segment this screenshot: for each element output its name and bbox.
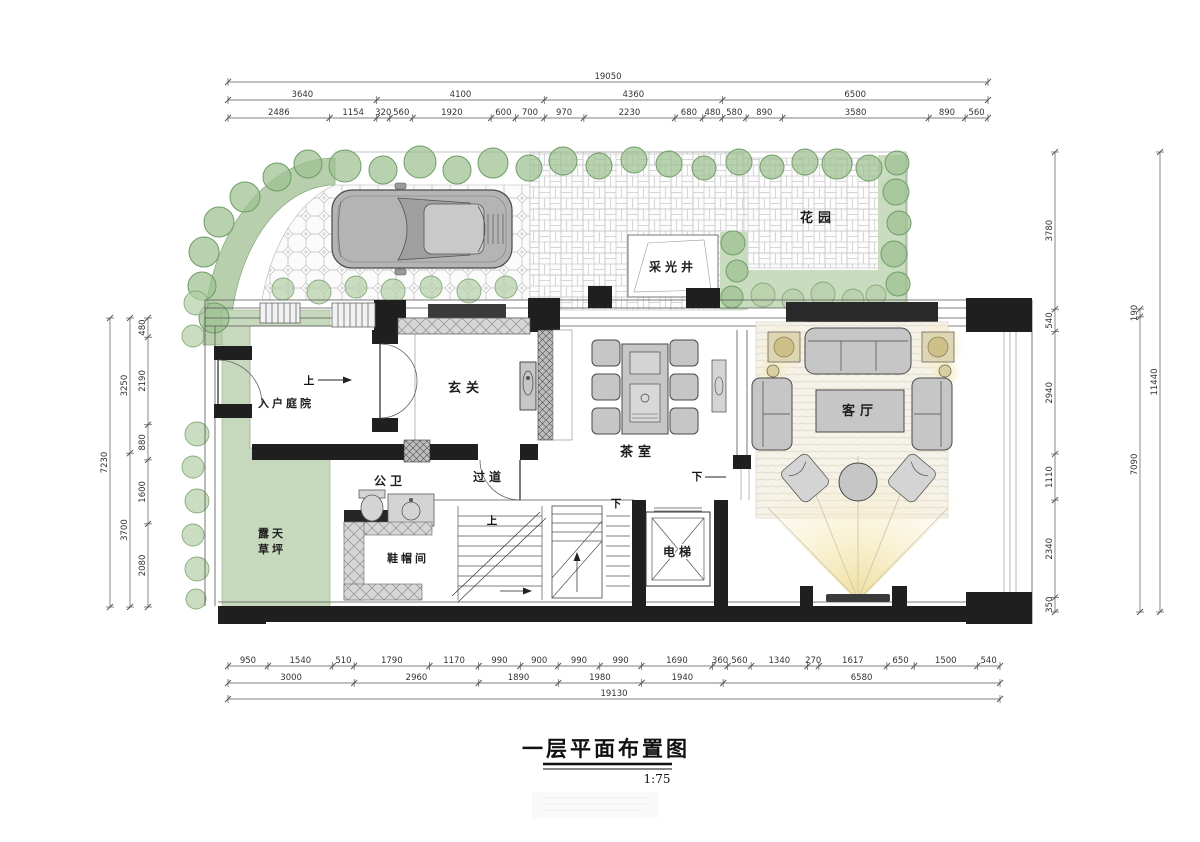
svg-text:360: 360 (712, 656, 728, 666)
floor-plan-drawing: 花园 采光井 入户庭院 玄关 茶室 客厅 公卫 过道 鞋帽间 电梯 露天 草坪 … (0, 0, 1200, 842)
label-entry-courtyard: 入户庭院 (258, 396, 314, 410)
down-annotation-step: 下 (692, 471, 726, 483)
svg-text:1890: 1890 (508, 673, 530, 683)
tea-room-furniture (592, 340, 726, 434)
label-cloakroom: 鞋帽间 (387, 551, 429, 565)
svg-text:480: 480 (138, 319, 148, 335)
dim-chain-left-mid: 32503700 (120, 315, 134, 610)
label-lawn-2: 草坪 (258, 542, 286, 556)
foyer-cabinets (398, 318, 536, 410)
svg-text:7090: 7090 (1130, 454, 1140, 476)
label-elevator: 电梯 (663, 544, 695, 559)
svg-text:480: 480 (704, 108, 720, 118)
svg-text:3000: 3000 (280, 673, 302, 683)
living-room-furniture (752, 321, 964, 602)
svg-text:890: 890 (756, 108, 772, 118)
dim-chain-right-inner: 3780540294011102340350 (1045, 149, 1059, 615)
dim-chain-left-outer: 7230 (100, 315, 114, 610)
svg-text:650: 650 (892, 656, 908, 666)
svg-text:1617: 1617 (842, 656, 864, 666)
svg-text:2230: 2230 (619, 108, 641, 118)
svg-text:2486: 2486 (268, 108, 290, 118)
svg-text:11440: 11440 (1150, 368, 1160, 395)
svg-text:1500: 1500 (935, 656, 957, 666)
drawing-title: 一层平面布置图 (522, 736, 690, 761)
svg-text:4360: 4360 (623, 90, 645, 100)
dim-chain-right-mid: 1907090 (1130, 305, 1144, 615)
label-lawn-1: 露天 (258, 527, 286, 540)
svg-text:19050: 19050 (594, 72, 621, 82)
svg-text:540: 540 (981, 656, 997, 666)
svg-text:950: 950 (240, 656, 256, 666)
svg-text:1940: 1940 (672, 673, 694, 683)
svg-text:560: 560 (393, 108, 409, 118)
svg-text:320: 320 (375, 108, 391, 118)
svg-text:1690: 1690 (666, 656, 688, 666)
svg-text:700: 700 (522, 108, 538, 118)
watermark (532, 792, 658, 818)
svg-text:2340: 2340 (1045, 538, 1055, 560)
svg-text:1154: 1154 (342, 108, 364, 118)
title-block: 一层平面布置图 1:75 (522, 736, 690, 786)
dim-chain-top-overall: 19050 (225, 72, 991, 86)
svg-text:2960: 2960 (406, 673, 428, 683)
svg-text:1600: 1600 (138, 481, 148, 503)
dim-chain-bottom-overall: 19130 (225, 689, 1003, 703)
up-annotation-stairs: 上 (487, 514, 498, 527)
svg-text:890: 890 (939, 108, 955, 118)
svg-text:3780: 3780 (1045, 220, 1055, 242)
svg-text:6500: 6500 (844, 90, 866, 100)
label-bathroom: 公卫 (374, 474, 406, 488)
dim-chain-right-outer: 11440 (1150, 149, 1164, 615)
svg-text:1980: 1980 (589, 673, 611, 683)
svg-text:900: 900 (531, 656, 547, 666)
svg-text:4100: 4100 (450, 90, 472, 100)
svg-text:990: 990 (491, 656, 507, 666)
floor-plan-canvas: 花园 采光井 入户庭院 玄关 茶室 客厅 公卫 过道 鞋帽间 电梯 露天 草坪 … (0, 0, 1200, 842)
svg-text:540: 540 (1045, 312, 1055, 328)
svg-text:1340: 1340 (769, 656, 791, 666)
svg-text:1920: 1920 (441, 108, 463, 118)
svg-text:3580: 3580 (845, 108, 867, 118)
svg-text:1790: 1790 (381, 656, 403, 666)
svg-text:2190: 2190 (138, 370, 148, 392)
label-light-well: 采光井 (648, 259, 697, 274)
svg-text:350: 350 (1045, 597, 1055, 613)
label-tea-room: 茶室 (620, 444, 656, 459)
car (332, 183, 512, 275)
label-foyer: 玄关 (448, 380, 484, 395)
drawing-scale: 1:75 (644, 772, 671, 786)
dim-chain-bottom-detail: 9501540510179011709909009909901690360560… (225, 656, 1003, 670)
svg-text:3250: 3250 (120, 375, 130, 397)
svg-text:580: 580 (726, 108, 742, 118)
svg-text:7230: 7230 (100, 452, 110, 474)
dim-chain-top-groups: 3640410043606500 (225, 90, 991, 104)
svg-text:3700: 3700 (120, 519, 130, 541)
dim-chain-top-detail: 2486115432056019206007009702230680480580… (225, 108, 991, 122)
svg-text:880: 880 (138, 434, 148, 450)
svg-text:990: 990 (612, 656, 628, 666)
svg-text:510: 510 (335, 656, 351, 666)
down-annotation-stairs: 下 (611, 498, 622, 510)
svg-text:1110: 1110 (1045, 466, 1055, 488)
label-garden: 花园 (800, 210, 836, 225)
svg-text:560: 560 (731, 656, 747, 666)
svg-text:2080: 2080 (138, 555, 148, 577)
svg-text:2940: 2940 (1045, 382, 1055, 404)
svg-text:1170: 1170 (443, 656, 465, 666)
dim-chain-left-inner: 480219088016002080 (138, 315, 152, 610)
bathroom-fixtures (359, 490, 434, 526)
svg-text:600: 600 (495, 108, 511, 118)
svg-text:680: 680 (681, 108, 697, 118)
svg-text:990: 990 (571, 656, 587, 666)
staircase (452, 506, 630, 602)
svg-text:3640: 3640 (292, 90, 314, 100)
svg-text:970: 970 (556, 108, 572, 118)
svg-text:下: 下 (692, 471, 703, 483)
label-living-room: 客厅 (842, 403, 878, 418)
svg-text:19130: 19130 (600, 689, 627, 699)
dim-chain-bottom-groups: 300029601890198019406580 (225, 673, 1003, 687)
svg-text:560: 560 (968, 108, 984, 118)
svg-text:6580: 6580 (851, 673, 873, 683)
svg-text:上: 上 (304, 374, 315, 387)
svg-text:1540: 1540 (290, 656, 312, 666)
label-corridor: 过道 (473, 469, 505, 484)
